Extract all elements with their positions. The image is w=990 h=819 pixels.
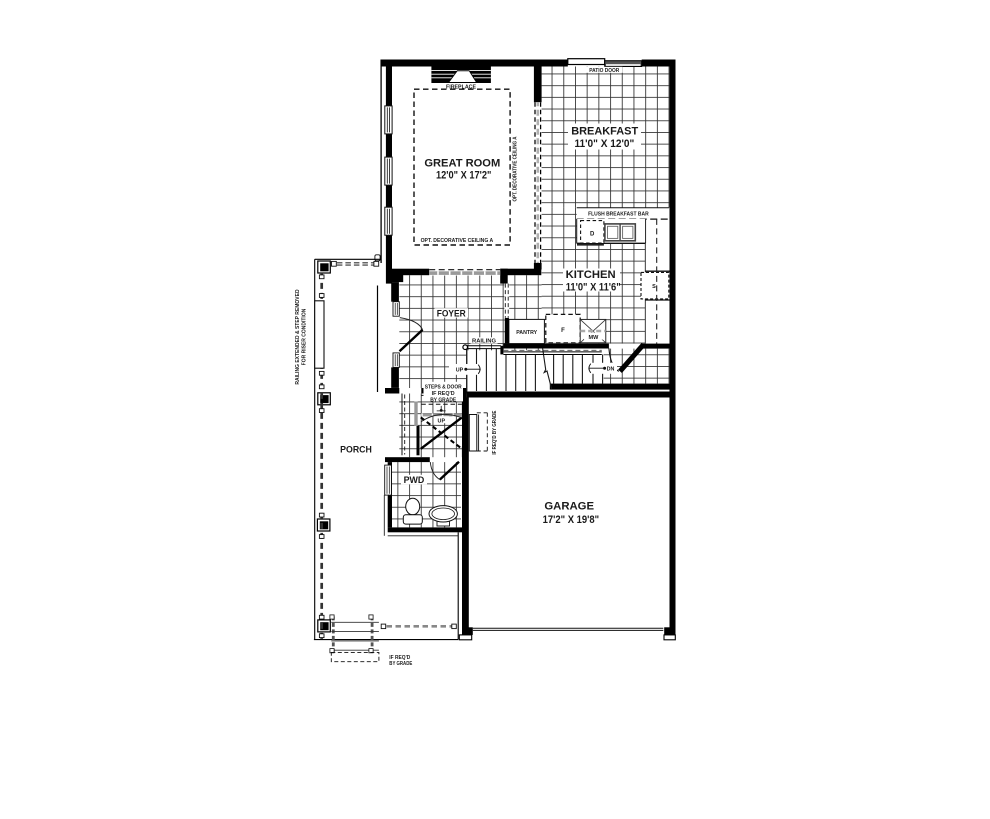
svg-text:KITCHEN: KITCHEN	[566, 269, 616, 281]
svg-text:FOR RISER CONDITION: FOR RISER CONDITION	[302, 308, 308, 365]
svg-text:17'2" X 19'8": 17'2" X 19'8"	[543, 514, 600, 526]
svg-text:GARAGE: GARAGE	[544, 501, 594, 513]
svg-text:BY GRADE: BY GRADE	[430, 397, 456, 403]
svg-text:MW: MW	[589, 335, 600, 341]
svg-text:BREAKFAST: BREAKFAST	[571, 126, 638, 138]
svg-text:PATIO DOOR: PATIO DOOR	[589, 68, 619, 74]
svg-text:S: S	[652, 284, 656, 290]
svg-text:FLUSH BREAKFAST BAR: FLUSH BREAKFAST BAR	[588, 212, 649, 218]
svg-text:RAILING EXTENDED & STEP REMOVE: RAILING EXTENDED & STEP REMOVED	[295, 289, 301, 385]
svg-text:12'0" X 17'2": 12'0" X 17'2"	[436, 170, 491, 182]
svg-text:PORCH: PORCH	[340, 444, 372, 455]
svg-text:IF REQ'D BY GRADE: IF REQ'D BY GRADE	[492, 410, 498, 454]
svg-text:DN: DN	[607, 366, 615, 372]
svg-text:STEPS & DOOR: STEPS & DOOR	[425, 385, 462, 391]
svg-text:PANTRY: PANTRY	[516, 330, 537, 336]
svg-text:UP: UP	[456, 367, 464, 373]
svg-text:F: F	[561, 328, 565, 334]
svg-text:OPT. DECORATIVE CEILING A: OPT. DECORATIVE CEILING A	[512, 136, 518, 201]
svg-text:UP: UP	[438, 418, 446, 424]
svg-text:OPT. DECORATIVE CEILING A: OPT. DECORATIVE CEILING A	[421, 238, 494, 244]
svg-text:BY GRADE: BY GRADE	[389, 661, 413, 667]
svg-text:PWD: PWD	[404, 475, 425, 486]
svg-text:GREAT ROOM: GREAT ROOM	[424, 157, 500, 169]
svg-text:RAILING: RAILING	[472, 339, 496, 345]
svg-text:FOYER: FOYER	[437, 308, 466, 318]
svg-text:D: D	[590, 232, 595, 238]
svg-text:IF REQ'D: IF REQ'D	[432, 391, 455, 397]
svg-text:11'0" X 12'0": 11'0" X 12'0"	[575, 138, 635, 150]
svg-text:11'0" X 11'6": 11'0" X 11'6"	[566, 281, 621, 293]
